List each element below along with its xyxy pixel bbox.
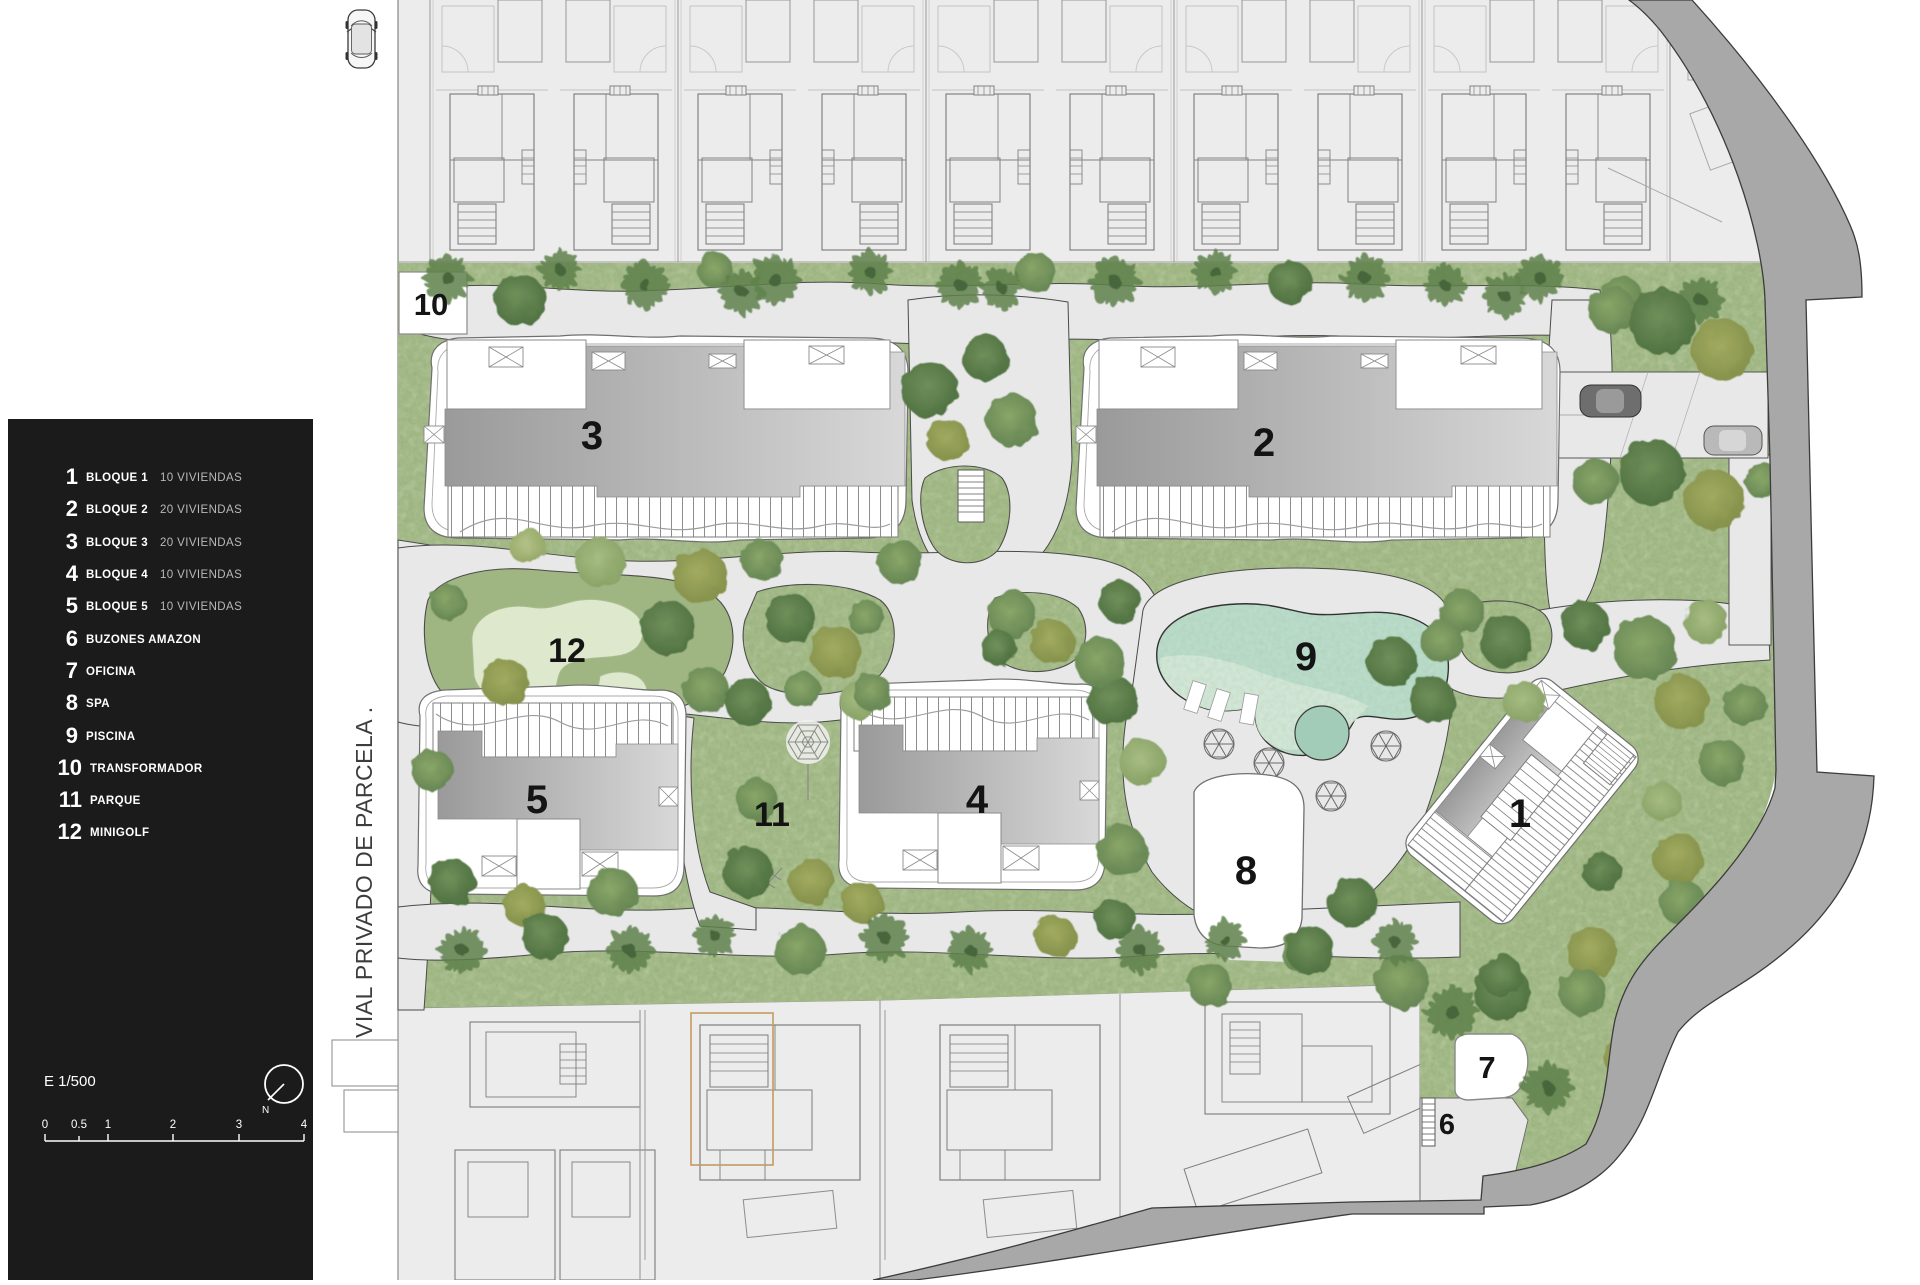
svg-text:10 VIVIENDAS: 10 VIVIENDAS [160, 601, 242, 613]
svg-text:3: 3 [66, 529, 78, 554]
svg-text:5: 5 [66, 593, 78, 618]
svg-text:TRANSFORMADOR: TRANSFORMADOR [90, 763, 203, 775]
svg-text:PISCINA: PISCINA [86, 731, 135, 743]
svg-text:12: 12 [58, 819, 82, 844]
svg-text:BLOQUE 5: BLOQUE 5 [86, 601, 148, 613]
svg-text:BLOQUE 4: BLOQUE 4 [86, 569, 148, 581]
svg-text:3: 3 [581, 414, 603, 458]
svg-text:7: 7 [1478, 1050, 1495, 1085]
svg-text:3: 3 [236, 1119, 242, 1131]
svg-text:OFICINA: OFICINA [86, 666, 136, 678]
svg-text:8: 8 [66, 690, 78, 715]
svg-text:2: 2 [170, 1119, 176, 1131]
svg-text:6: 6 [66, 626, 78, 651]
svg-text:1: 1 [1509, 792, 1531, 836]
svg-text:9: 9 [66, 723, 78, 748]
svg-text:BLOQUE 3: BLOQUE 3 [86, 537, 148, 549]
svg-text:PARQUE: PARQUE [90, 795, 141, 807]
svg-text:20 VIVIENDAS: 20 VIVIENDAS [160, 537, 242, 549]
svg-text:4: 4 [966, 778, 989, 822]
svg-text:9: 9 [1295, 635, 1317, 679]
svg-text:10: 10 [58, 755, 82, 780]
svg-text:5: 5 [526, 778, 548, 822]
svg-text:11: 11 [754, 796, 790, 834]
svg-text:N: N [262, 1105, 269, 1116]
svg-text:1: 1 [105, 1119, 111, 1131]
svg-text:8: 8 [1235, 849, 1257, 893]
svg-text:1: 1 [66, 464, 78, 489]
svg-text:10 VIVIENDAS: 10 VIVIENDAS [160, 472, 242, 484]
svg-text:11: 11 [59, 787, 82, 812]
svg-text:7: 7 [66, 658, 78, 683]
svg-text:6: 6 [1439, 1109, 1455, 1141]
svg-text:E 1/500: E 1/500 [44, 1073, 96, 1090]
svg-text:10: 10 [414, 287, 448, 322]
svg-text:BLOQUE 2: BLOQUE 2 [86, 504, 148, 516]
svg-text:MINIGOLF: MINIGOLF [90, 827, 149, 839]
svg-text:12: 12 [548, 632, 586, 670]
svg-text:4: 4 [301, 1119, 308, 1131]
svg-text:10 VIVIENDAS: 10 VIVIENDAS [160, 569, 242, 581]
svg-text:0.5: 0.5 [71, 1119, 87, 1131]
svg-text:2: 2 [1253, 421, 1275, 465]
svg-text:0: 0 [42, 1119, 48, 1131]
svg-text:SPA: SPA [86, 698, 110, 710]
svg-text:4: 4 [66, 561, 79, 586]
svg-text:VIAL PRIVADO DE PARCELA .: VIAL PRIVADO DE PARCELA . [351, 706, 377, 1038]
svg-text:2: 2 [66, 496, 78, 521]
svg-text:BUZONES AMAZON: BUZONES AMAZON [86, 634, 201, 646]
svg-text:20 VIVIENDAS: 20 VIVIENDAS [160, 504, 242, 516]
svg-text:BLOQUE 1: BLOQUE 1 [86, 472, 148, 484]
